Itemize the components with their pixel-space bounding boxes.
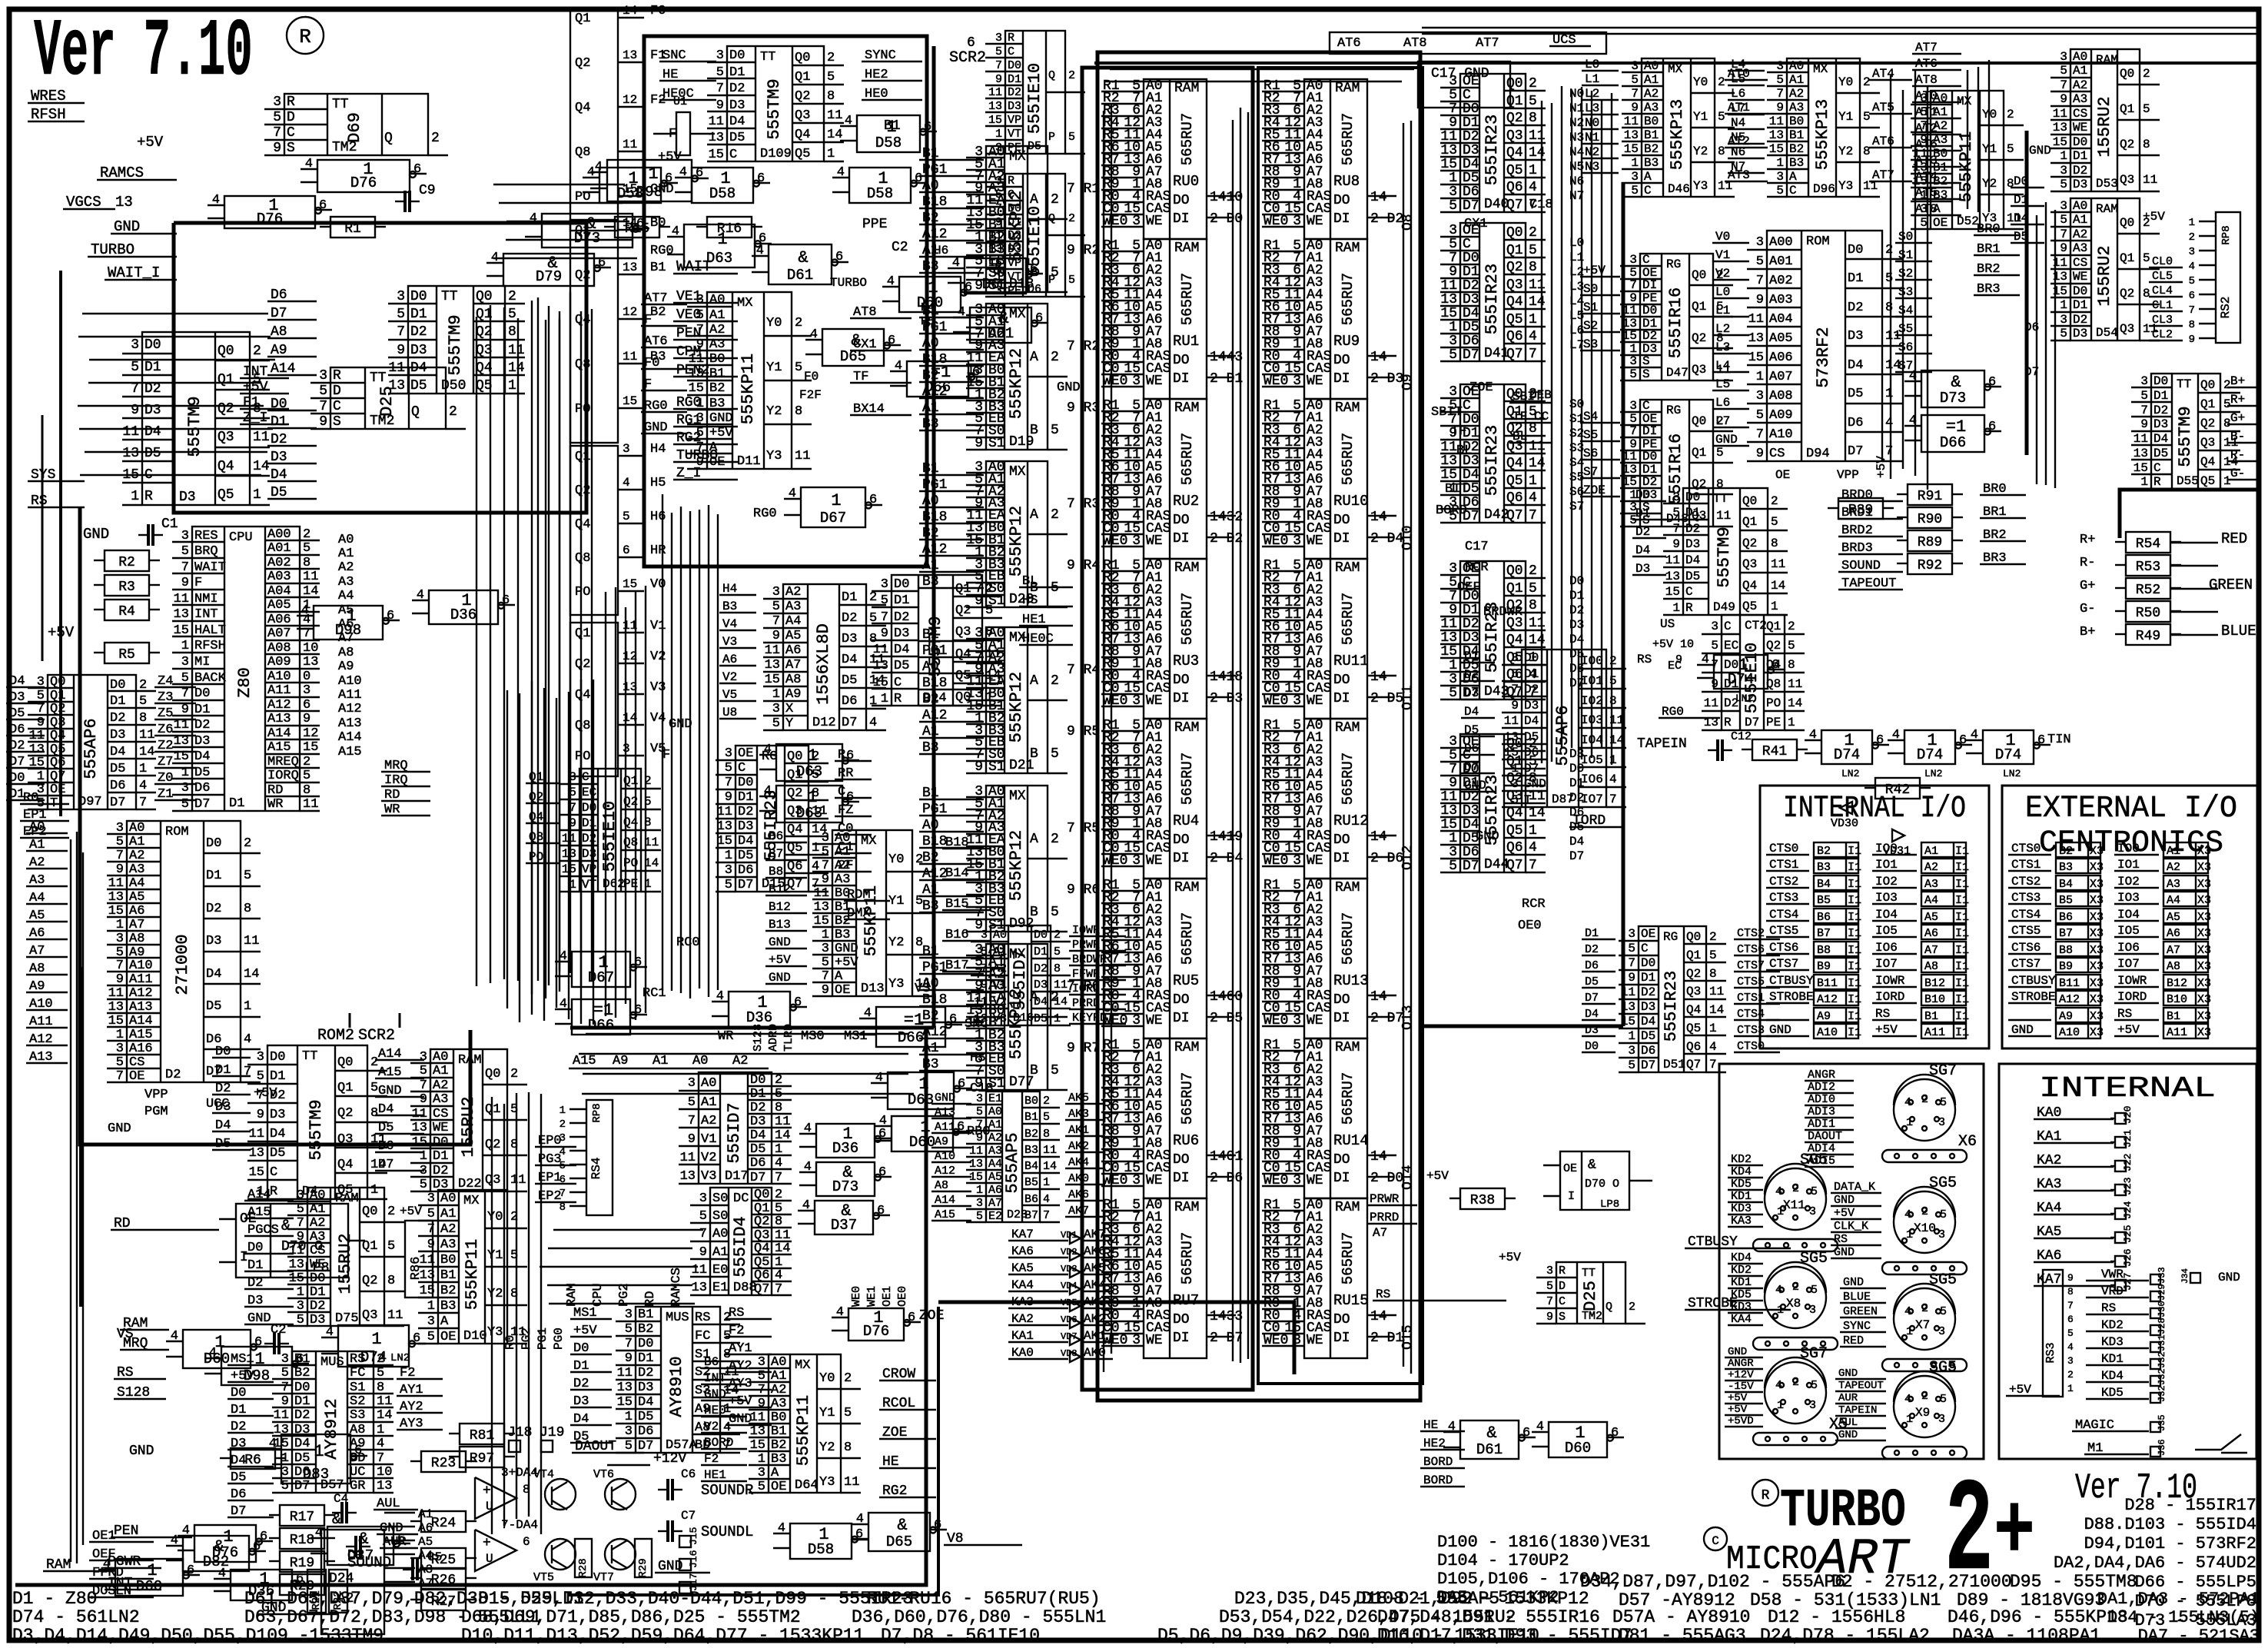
svg-text:555TM9: 555TM9	[446, 314, 465, 375]
svg-text:L7: L7	[1731, 101, 1745, 115]
svg-text:15: 15	[108, 904, 124, 919]
svg-text:RAM: RAM	[1174, 241, 1199, 256]
svg-text:DI: DI	[1333, 1011, 1350, 1026]
svg-text:3: 3	[397, 289, 405, 304]
svg-text:9: 9	[569, 816, 576, 830]
svg-text:9: 9	[420, 1092, 427, 1107]
svg-text:MX: MX	[737, 296, 752, 311]
svg-text:15: 15	[1440, 467, 1457, 483]
svg-text:WE0: WE0	[1103, 853, 1127, 869]
svg-text:D5: D5	[894, 659, 909, 673]
svg-text:D0: D0	[582, 801, 596, 815]
svg-text:11: 11	[1043, 1144, 1057, 1157]
svg-text:D1: D1	[582, 816, 596, 830]
svg-text:V3: V3	[993, 1012, 1007, 1025]
svg-text:A2: A2	[1644, 87, 1659, 101]
svg-text:BORD: BORD	[704, 1436, 733, 1450]
svg-text:Q3: Q3	[955, 625, 971, 640]
svg-text:5: 5	[427, 1330, 435, 1344]
svg-text:LN2: LN2	[390, 1352, 410, 1364]
svg-text:13: 13	[108, 890, 124, 905]
svg-text:D2: D2	[270, 1088, 285, 1103]
svg-text:15: 15	[1440, 644, 1457, 660]
svg-text:KA3: KA3	[1011, 1295, 1034, 1309]
svg-text:565RU7: 565RU7	[1340, 273, 1356, 325]
svg-text:B0: B0	[1789, 115, 1804, 128]
svg-text:+12V: +12V	[653, 1451, 686, 1467]
svg-text:RAM: RAM	[1174, 1040, 1199, 1055]
svg-text:1: 1	[758, 1452, 765, 1467]
svg-text:11: 11	[508, 343, 525, 358]
svg-text:3: 3	[1631, 170, 1639, 184]
svg-text:3: 3	[257, 1050, 264, 1065]
svg-text:B2: B2	[709, 381, 725, 396]
svg-text:Q5: Q5	[218, 487, 234, 503]
svg-text:15: 15	[709, 148, 724, 162]
svg-text:7: 7	[1449, 251, 1457, 266]
svg-text:7 R4: 7 R4	[1067, 663, 1100, 678]
svg-text:WE: WE	[1146, 853, 1163, 869]
svg-text:VT7: VT7	[593, 1571, 614, 1584]
svg-text:+: +	[483, 1484, 491, 1499]
svg-text:S0: S0	[1583, 282, 1598, 296]
svg-text:9: 9	[303, 712, 310, 726]
svg-text:RAMCS: RAMCS	[669, 1268, 684, 1307]
svg-text:13: 13	[765, 658, 780, 673]
svg-text:D16: D16	[1013, 1012, 1034, 1025]
svg-text:MI: MI	[194, 655, 210, 669]
svg-text:D12: D12	[812, 716, 836, 730]
svg-text:9: 9	[1449, 264, 1457, 280]
svg-text:D42: D42	[1484, 507, 1509, 523]
svg-text:VGCS: VGCS	[66, 194, 101, 211]
svg-text:5: 5	[758, 1480, 765, 1494]
svg-text:7: 7	[427, 1222, 435, 1237]
svg-text:2: 2	[303, 755, 310, 769]
svg-text:WE: WE	[1307, 1333, 1323, 1348]
svg-text:GND: GND	[769, 935, 791, 949]
svg-text:E2: E2	[988, 1210, 1002, 1223]
svg-text:2 D0: 2 D0	[1370, 1171, 1403, 1186]
svg-text:D: D	[333, 384, 341, 399]
svg-text:B2: B2	[440, 1284, 456, 1298]
svg-text:9 R7: 9 R7	[1067, 1041, 1100, 1056]
svg-text:9: 9	[297, 1230, 304, 1244]
svg-text:9: 9	[319, 414, 327, 430]
svg-text:Q3: Q3	[1692, 363, 1706, 377]
svg-text:D0: D0	[638, 1337, 653, 1351]
svg-text:4: 4	[377, 1437, 384, 1451]
svg-text:13: 13	[1440, 630, 1457, 646]
svg-text:6: 6	[908, 1311, 915, 1325]
svg-text:PO: PO	[623, 856, 638, 870]
svg-text:AK4: AK4	[1068, 1156, 1089, 1169]
svg-text:C: C	[270, 1165, 277, 1180]
svg-text:D4: D4	[1034, 995, 1048, 1008]
svg-text:3: 3	[1293, 533, 1301, 549]
svg-text:14: 14	[644, 856, 659, 870]
svg-text:Q6: Q6	[1506, 840, 1523, 856]
svg-text:1: 1	[822, 928, 829, 942]
svg-text:CX1: CX1	[1464, 217, 1488, 231]
svg-text:D7: D7	[1463, 198, 1479, 214]
svg-text:5: 5	[696, 426, 704, 440]
svg-text:5: 5	[387, 1239, 395, 1254]
svg-text:555KP12: 555KP12	[1007, 830, 1026, 901]
svg-text:AK0: AK0	[1084, 1346, 1106, 1360]
svg-text:ADRD: ADRD	[767, 1024, 780, 1052]
svg-text:4: 4	[802, 1198, 810, 1213]
svg-text:DI: DI	[1173, 1011, 1190, 1026]
svg-text:Y3: Y3	[487, 1325, 503, 1340]
svg-text:3: 3	[427, 1191, 435, 1206]
svg-text:WE0: WE0	[1264, 1173, 1288, 1188]
svg-text:5: 5	[560, 1160, 566, 1172]
svg-text:A: A	[1030, 832, 1038, 847]
svg-text:15: 15	[750, 1438, 765, 1453]
svg-text:RFSH: RFSH	[31, 106, 66, 123]
svg-text:3: 3	[1132, 533, 1141, 549]
svg-text:D0: D0	[1642, 304, 1657, 317]
svg-text:5: 5	[116, 835, 124, 849]
svg-text:11: 11	[139, 728, 154, 743]
svg-text:Q4: Q4	[795, 128, 810, 142]
svg-text:5: 5	[644, 795, 652, 809]
svg-text:D0: D0	[194, 686, 210, 701]
svg-text:A: A	[1030, 673, 1038, 689]
svg-text:AT6: AT6	[1337, 36, 1361, 51]
svg-text:5: 5	[696, 308, 704, 323]
svg-text:H4: H4	[722, 582, 737, 596]
svg-text:WE: WE	[1146, 1333, 1163, 1348]
svg-text:VD5: VD5	[1061, 1297, 1078, 1308]
svg-text:Y2: Y2	[1693, 145, 1708, 158]
svg-text:13: 13	[873, 659, 888, 673]
svg-text:11: 11	[717, 805, 732, 819]
svg-text:D5: D5	[729, 131, 745, 145]
svg-text:6: 6	[254, 1335, 262, 1350]
svg-text:Q6: Q6	[1506, 490, 1523, 506]
svg-text:D19: D19	[1009, 434, 1034, 450]
svg-text:Q3: Q3	[337, 1132, 353, 1147]
svg-text:Q6: Q6	[1506, 329, 1523, 344]
svg-text:1: 1	[772, 687, 780, 702]
svg-text:ZOE: ZOE	[919, 1308, 944, 1324]
svg-text:D0: D0	[206, 836, 221, 851]
svg-text:TT: TT	[441, 289, 458, 304]
svg-text:2: 2	[1051, 507, 1059, 523]
svg-text:R: R	[144, 489, 153, 504]
svg-text:VD3: VD3	[1061, 1264, 1078, 1274]
svg-text:Y1: Y1	[766, 360, 782, 375]
svg-text:N3: N3	[1585, 160, 1599, 174]
svg-text:RAM: RAM	[1174, 560, 1199, 576]
svg-text:R3: R3	[118, 580, 135, 595]
svg-text:V3: V3	[722, 635, 737, 649]
svg-text:9: 9	[976, 1131, 983, 1145]
svg-text:10: 10	[377, 1465, 392, 1480]
svg-text:6: 6	[934, 1518, 941, 1533]
svg-text:1: 1	[427, 1299, 435, 1314]
svg-text:MUS: MUS	[320, 1355, 344, 1370]
svg-text:7: 7	[822, 969, 829, 984]
svg-text:6: 6	[387, 609, 394, 623]
svg-text:O13: O13	[1400, 1005, 1416, 1030]
svg-text:4: 4	[1529, 490, 1537, 506]
svg-text:5: 5	[688, 1095, 696, 1110]
svg-text:Q3: Q3	[1506, 128, 1523, 144]
svg-text:GND: GND	[114, 218, 140, 235]
svg-text:B13: B13	[769, 918, 791, 932]
svg-text:3: 3	[116, 1042, 124, 1056]
svg-text:1: 1	[377, 1423, 384, 1437]
svg-text:1443: 1443	[1210, 350, 1243, 365]
svg-text:C9: C9	[419, 183, 436, 198]
svg-text:D5: D5	[1034, 1012, 1048, 1025]
svg-text:1418: 1418	[1210, 669, 1243, 685]
svg-text:14: 14	[1370, 1309, 1387, 1324]
svg-text:11: 11	[1622, 304, 1637, 317]
svg-text:4: 4	[171, 1533, 178, 1548]
svg-text:Q4: Q4	[1506, 145, 1523, 161]
svg-text:D7: D7	[1463, 347, 1479, 363]
svg-text:WE: WE	[1146, 693, 1163, 709]
svg-text:A: A	[1030, 192, 1038, 208]
svg-text:11: 11	[709, 115, 724, 129]
svg-text:A4: A4	[988, 1158, 1002, 1171]
svg-text:1: 1	[303, 598, 310, 613]
svg-text:S: S	[287, 141, 295, 156]
svg-text:E1: E1	[712, 1281, 728, 1295]
svg-text:+: +	[483, 1536, 491, 1551]
svg-text:1: 1	[625, 1410, 633, 1424]
svg-text:Q2: Q2	[1506, 260, 1523, 275]
svg-text:2: 2	[431, 131, 440, 146]
svg-text:A1: A1	[701, 1095, 716, 1110]
svg-text:7: 7	[696, 323, 704, 337]
svg-text:11: 11	[1716, 509, 1731, 523]
svg-text:BRDWR: BRDWR	[1072, 953, 1107, 966]
svg-text:7: 7	[181, 560, 189, 575]
svg-text:11: 11	[1529, 128, 1546, 144]
svg-text:8: 8	[377, 1381, 384, 1395]
svg-text:WE: WE	[1146, 1013, 1163, 1028]
svg-text:BORD: BORD	[1436, 503, 1467, 518]
svg-text:6: 6	[260, 1530, 267, 1544]
svg-text:WRES: WRES	[31, 88, 66, 105]
svg-text:RAM: RAM	[1335, 400, 1360, 416]
svg-text:SCR2: SCR2	[949, 49, 986, 67]
svg-text:5: 5	[1449, 88, 1457, 103]
svg-text:AK2: AK2	[1068, 1140, 1089, 1153]
svg-text:13: 13	[1440, 803, 1457, 819]
svg-text:KA5: KA5	[1011, 1261, 1034, 1275]
svg-text:2 D5: 2 D5	[1210, 1011, 1243, 1026]
svg-text:A14: A14	[935, 1194, 955, 1207]
svg-text:WE0: WE0	[1264, 853, 1288, 869]
svg-text:565RU7: 565RU7	[1179, 433, 1196, 485]
svg-text:R29: R29	[637, 1558, 649, 1577]
svg-text:GND: GND	[935, 1091, 955, 1105]
svg-text:A11: A11	[338, 688, 362, 703]
svg-text:14: 14	[1370, 989, 1387, 1005]
svg-text:A2: A2	[1789, 87, 1804, 101]
svg-text:A4: A4	[338, 589, 354, 603]
svg-text:AY8912: AY8912	[322, 1398, 341, 1459]
svg-text:R23: R23	[431, 1456, 456, 1471]
svg-text:Q1: Q1	[1506, 243, 1523, 258]
svg-text:3: 3	[1293, 374, 1301, 389]
svg-text:555ID7: 555ID7	[1011, 949, 1030, 1010]
svg-text:Q1: Q1	[218, 372, 234, 387]
svg-text:7: 7	[696, 440, 704, 455]
svg-text:6: 6	[413, 162, 421, 177]
svg-text:DO: DO	[1333, 673, 1350, 688]
svg-text:1: 1	[775, 1142, 782, 1157]
svg-text:D6: D6	[738, 863, 753, 878]
svg-text:D7: D7	[750, 1171, 765, 1185]
svg-text:3: 3	[1449, 223, 1457, 238]
svg-text:A0: A0	[988, 1105, 1002, 1118]
svg-text:D5: D5	[206, 999, 221, 1014]
svg-text:555KP12: 555KP12	[1007, 506, 1026, 576]
svg-text:WE: WE	[1307, 693, 1323, 709]
svg-text:3: 3	[688, 1076, 696, 1091]
svg-text:3: 3	[725, 863, 732, 878]
svg-text:R: R	[299, 25, 311, 48]
svg-text:A09: A09	[267, 655, 291, 669]
svg-text:DI: DI	[1173, 851, 1190, 866]
svg-text:4: 4	[879, 1114, 887, 1128]
svg-text:15: 15	[274, 1437, 289, 1451]
svg-text:VD6: VD6	[1061, 1314, 1078, 1325]
svg-text:5: 5	[716, 65, 724, 80]
svg-text:OE: OE	[440, 1330, 456, 1344]
svg-text:565RU7: 565RU7	[1340, 593, 1356, 645]
svg-text:RP8: RP8	[591, 1103, 603, 1122]
svg-text:5: 5	[257, 1069, 264, 1084]
svg-text:D3: D3	[582, 847, 596, 861]
svg-text:D3: D3	[842, 632, 857, 646]
svg-text:Q0: Q0	[1692, 268, 1706, 282]
svg-text:A9: A9	[338, 660, 354, 674]
svg-text:13: 13	[814, 900, 829, 915]
svg-text:5: 5	[1631, 184, 1639, 198]
svg-text:6: 6	[253, 1540, 261, 1554]
svg-text:Q2: Q2	[795, 89, 810, 104]
svg-text:R81: R81	[470, 1428, 494, 1444]
svg-text:WE: WE	[1307, 214, 1323, 229]
svg-text:D67: D67	[588, 969, 614, 986]
svg-text:J16: J16	[688, 1550, 699, 1568]
svg-text:11: 11	[827, 108, 842, 123]
svg-text:1: 1	[725, 849, 732, 863]
svg-text:8: 8	[1054, 962, 1061, 975]
svg-text:S: S	[1642, 367, 1650, 381]
svg-text:RU3: RU3	[1173, 653, 1199, 669]
svg-text:3: 3	[281, 1465, 289, 1480]
svg-text:7: 7	[377, 1451, 384, 1466]
svg-text:6: 6	[949, 1012, 957, 1027]
svg-text:DI: DI	[1642, 424, 1657, 438]
svg-text:Q2: Q2	[337, 1106, 353, 1121]
svg-text:AK5: AK5	[1068, 1091, 1089, 1105]
svg-text:11: 11	[765, 643, 780, 658]
svg-text:1: 1	[831, 491, 841, 510]
svg-text:RU6: RU6	[1173, 1132, 1199, 1149]
svg-text:5: 5	[915, 894, 923, 909]
svg-text:D3: D3	[310, 1313, 325, 1327]
svg-text:13: 13	[1440, 143, 1457, 158]
svg-text:11: 11	[775, 1115, 790, 1129]
svg-text:7: 7	[1449, 101, 1457, 117]
svg-text:3: 3	[1449, 734, 1457, 749]
svg-text:3: 3	[116, 932, 124, 946]
svg-text:A1: A1	[338, 547, 354, 561]
svg-text:3: 3	[699, 1191, 707, 1206]
svg-text:Q0: Q0	[1506, 225, 1523, 241]
svg-text:6: 6	[634, 955, 642, 970]
svg-text:2: 2	[1529, 225, 1537, 241]
svg-text:5: 5	[1051, 905, 1059, 920]
svg-text:OE1: OE1	[881, 1286, 894, 1307]
svg-text:2: 2	[303, 527, 310, 542]
svg-text:R0: R0	[503, 1335, 517, 1350]
svg-text:D1: D1	[842, 590, 857, 605]
svg-text:4: 4	[864, 1006, 872, 1021]
svg-text:3: 3	[772, 585, 780, 600]
svg-text:3: 3	[1629, 253, 1637, 267]
svg-text:A0: A0	[712, 1227, 728, 1241]
svg-text:4: 4	[1529, 840, 1537, 856]
svg-text:MX: MX	[861, 834, 876, 849]
svg-text:Q4: Q4	[623, 816, 638, 829]
svg-text:D60: D60	[909, 1134, 935, 1151]
svg-text:C7: C7	[681, 1509, 696, 1523]
svg-text:7: 7	[812, 877, 819, 892]
svg-text:14: 14	[1529, 633, 1546, 648]
svg-text:9: 9	[975, 436, 983, 451]
svg-text:1: 1	[244, 999, 251, 1014]
svg-text:KA1: KA1	[1011, 1329, 1034, 1343]
svg-text:S0: S0	[712, 1209, 728, 1224]
svg-text:S: S	[1642, 354, 1650, 368]
svg-text:3: 3	[297, 1299, 304, 1314]
svg-text:7: 7	[1631, 87, 1639, 101]
svg-text:Q5: Q5	[1506, 473, 1523, 489]
svg-text:Y3: Y3	[1838, 179, 1853, 193]
svg-text:IORD: IORD	[1072, 982, 1100, 995]
svg-text:A2: A2	[440, 1222, 456, 1237]
svg-text:9: 9	[281, 1394, 289, 1409]
svg-text:A2: A2	[701, 1114, 716, 1128]
svg-text:A8: A8	[935, 1179, 948, 1192]
svg-text:B12: B12	[769, 900, 791, 914]
svg-text:O11: O11	[1400, 686, 1416, 710]
svg-text:A12: A12	[935, 1165, 955, 1178]
svg-text:3: 3	[116, 821, 124, 836]
svg-text:Q0: Q0	[1692, 414, 1706, 428]
svg-text:9: 9	[1776, 101, 1784, 115]
svg-text:B2: B2	[1024, 1128, 1038, 1141]
svg-text:RU2: RU2	[1173, 493, 1199, 510]
svg-text:8: 8	[915, 935, 923, 950]
svg-text:14: 14	[139, 745, 154, 759]
svg-text:ROM2: ROM2	[317, 1027, 354, 1045]
svg-text:RG0: RG0	[650, 244, 674, 258]
svg-text:11: 11	[969, 1145, 983, 1158]
svg-text:TT: TT	[302, 1049, 317, 1064]
